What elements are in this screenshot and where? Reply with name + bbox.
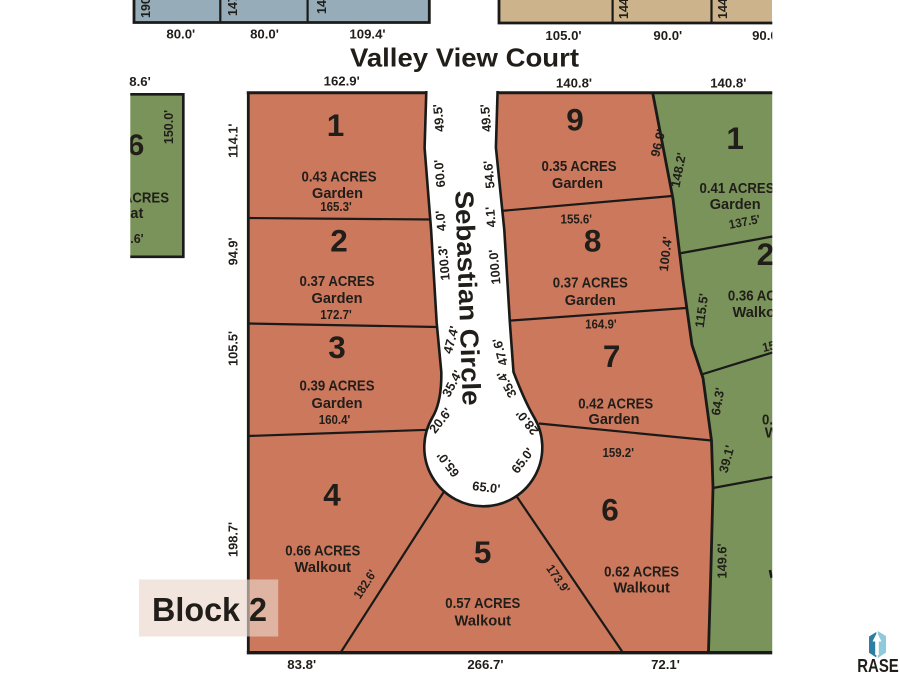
svg-text:1: 1 bbox=[726, 120, 744, 156]
svg-text:140.8': 140.8' bbox=[710, 75, 746, 90]
svg-text:Walkout: Walkout bbox=[455, 613, 512, 629]
svg-text:162.9': 162.9' bbox=[324, 73, 360, 88]
svg-text:2: 2 bbox=[330, 223, 348, 259]
svg-text:54.6': 54.6' bbox=[480, 160, 497, 189]
svg-text:94.9': 94.9' bbox=[226, 237, 241, 265]
svg-text:80.0': 80.0' bbox=[250, 27, 279, 42]
svg-text:144.0': 144.0' bbox=[716, 0, 730, 19]
svg-text:100.0': 100.0' bbox=[485, 249, 503, 285]
svg-text:8.6': 8.6' bbox=[129, 74, 150, 89]
svg-text:109.4': 109.4' bbox=[349, 27, 385, 42]
svg-text:140.8': 140.8' bbox=[556, 75, 592, 90]
svg-text:Walkout: Walkout bbox=[295, 560, 352, 576]
svg-text:0.37 ACRES: 0.37 ACRES bbox=[300, 274, 375, 290]
svg-text:149.6': 149.6' bbox=[715, 543, 730, 578]
svg-text:Garden: Garden bbox=[565, 293, 616, 309]
svg-text:155.6': 155.6' bbox=[561, 213, 593, 227]
svg-text:144.4': 144.4' bbox=[617, 0, 631, 19]
svg-text:190.5': 190.5' bbox=[139, 0, 153, 18]
svg-text:100.3': 100.3' bbox=[435, 245, 453, 281]
svg-text:9: 9 bbox=[566, 102, 584, 138]
svg-text:8: 8 bbox=[584, 223, 602, 259]
svg-text:0.66 ACRES: 0.66 ACRES bbox=[285, 543, 360, 559]
svg-text:49.5': 49.5' bbox=[477, 103, 494, 132]
svg-text:Garden: Garden bbox=[552, 176, 603, 192]
svg-text:147.9': 147.9' bbox=[226, 0, 240, 16]
svg-text:80.0': 80.0' bbox=[166, 27, 195, 42]
svg-text:172.7': 172.7' bbox=[320, 308, 352, 322]
svg-text:Walkout: Walkout bbox=[613, 580, 670, 596]
svg-text:114.1': 114.1' bbox=[226, 124, 241, 158]
svg-text:141.6': 141.6' bbox=[315, 0, 329, 14]
svg-text:0.57 ACRES: 0.57 ACRES bbox=[445, 596, 520, 612]
svg-text:4: 4 bbox=[323, 477, 341, 513]
svg-text:6: 6 bbox=[601, 492, 619, 528]
svg-text:83.8': 83.8' bbox=[287, 657, 316, 672]
svg-text:0.39 ACRES: 0.39 ACRES bbox=[300, 378, 375, 394]
svg-text:72.1': 72.1' bbox=[651, 657, 680, 672]
svg-text:Garden: Garden bbox=[312, 396, 363, 412]
svg-text:1: 1 bbox=[327, 107, 345, 143]
svg-text:4.0': 4.0' bbox=[432, 210, 449, 232]
svg-text:0.42 ACRES: 0.42 ACRES bbox=[578, 397, 653, 413]
svg-text:0.35 ACRES: 0.35 ACRES bbox=[542, 159, 617, 175]
svg-text:0.43 ACRES: 0.43 ACRES bbox=[302, 169, 377, 185]
svg-text:0.62 ACRES: 0.62 ACRES bbox=[604, 564, 679, 580]
svg-text:198.7': 198.7' bbox=[226, 522, 241, 557]
svg-text:Garden: Garden bbox=[710, 197, 761, 213]
svg-text:150.0': 150.0' bbox=[162, 110, 176, 144]
svg-text:49.5': 49.5' bbox=[430, 103, 447, 132]
svg-text:60.0': 60.0' bbox=[431, 159, 448, 188]
svg-text:105.5': 105.5' bbox=[226, 331, 241, 366]
svg-text:164.9': 164.9' bbox=[585, 318, 617, 332]
svg-text:160.4': 160.4' bbox=[319, 413, 351, 427]
svg-text:165.3': 165.3' bbox=[320, 200, 352, 214]
svg-text:Garden: Garden bbox=[312, 291, 363, 307]
svg-text:Garden: Garden bbox=[589, 412, 640, 428]
svg-text:266.7': 266.7' bbox=[467, 657, 503, 672]
svg-text:5: 5 bbox=[474, 534, 492, 570]
svg-text:7: 7 bbox=[603, 338, 621, 374]
svg-text:RASE: RASE bbox=[857, 656, 899, 675]
svg-text:Valley View Court: Valley View Court bbox=[350, 43, 579, 73]
svg-text:2: 2 bbox=[757, 236, 775, 272]
svg-text:0.37 ACRES: 0.37 ACRES bbox=[553, 276, 628, 292]
svg-text:105.0': 105.0' bbox=[545, 28, 581, 43]
svg-text:0.41 ACRES: 0.41 ACRES bbox=[700, 181, 775, 197]
svg-text:3: 3 bbox=[328, 329, 346, 365]
svg-text:159.2': 159.2' bbox=[602, 446, 634, 460]
svg-text:90.0': 90.0' bbox=[653, 28, 682, 43]
svg-text:4.1': 4.1' bbox=[482, 206, 499, 228]
svg-text:Block 2: Block 2 bbox=[152, 592, 267, 629]
